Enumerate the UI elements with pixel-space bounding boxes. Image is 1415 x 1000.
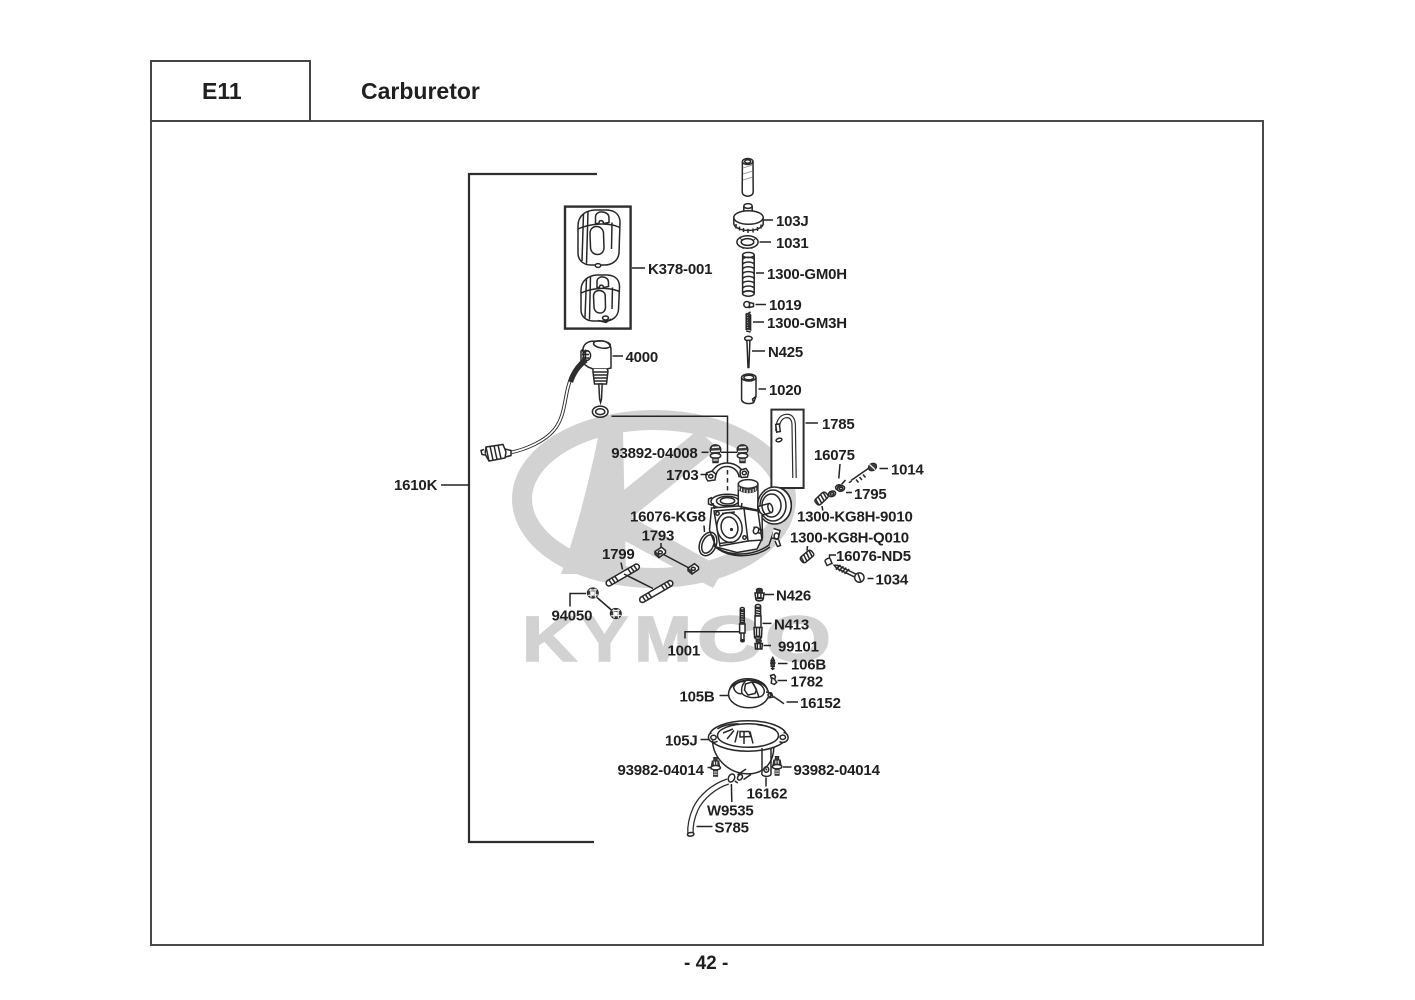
svg-text:1703: 1703 (666, 467, 699, 484)
svg-text:- 42 -: - 42 - (684, 953, 728, 974)
svg-text:1799: 1799 (602, 546, 635, 563)
svg-text:W9535: W9535 (707, 803, 754, 820)
svg-text:S785: S785 (715, 820, 749, 837)
svg-text:106B: 106B (791, 657, 826, 674)
svg-text:16162: 16162 (747, 786, 788, 803)
svg-text:1014: 1014 (891, 462, 924, 479)
svg-text:K378-001: K378-001 (648, 261, 712, 278)
svg-text:16076-KG8: 16076-KG8 (630, 509, 706, 526)
svg-text:94050: 94050 (552, 608, 593, 625)
svg-text:99101: 99101 (778, 639, 819, 656)
svg-text:1300-KG8H-9010: 1300-KG8H-9010 (797, 509, 913, 526)
svg-text:4000: 4000 (626, 349, 659, 366)
svg-text:16076-ND5: 16076-ND5 (836, 548, 911, 565)
svg-text:1610K: 1610K (394, 477, 438, 494)
svg-text:1300-KG8H-Q010: 1300-KG8H-Q010 (790, 530, 909, 547)
svg-text:E11: E11 (202, 78, 242, 104)
svg-text:1785: 1785 (822, 416, 855, 433)
svg-text:93982-04014: 93982-04014 (618, 762, 705, 779)
svg-text:1034: 1034 (876, 572, 909, 589)
svg-text:16152: 16152 (800, 695, 841, 712)
svg-text:N425: N425 (768, 344, 803, 361)
svg-text:M: M (635, 603, 692, 675)
svg-text:1300-GM0H: 1300-GM0H (767, 266, 847, 283)
svg-text:105J: 105J (665, 733, 698, 750)
svg-text:1020: 1020 (769, 382, 802, 399)
svg-text:1300-GM3H: 1300-GM3H (767, 315, 847, 332)
svg-text:1001: 1001 (668, 643, 701, 660)
svg-text:103J: 103J (776, 213, 809, 230)
svg-text:Carburetor: Carburetor (361, 78, 480, 104)
svg-text:1795: 1795 (854, 486, 887, 503)
svg-text:1031: 1031 (776, 235, 809, 252)
svg-text:1782: 1782 (791, 674, 824, 691)
svg-text:16075: 16075 (814, 447, 855, 464)
svg-text:N413: N413 (774, 617, 809, 634)
svg-text:1793: 1793 (642, 528, 675, 545)
svg-text:93982-04014: 93982-04014 (794, 762, 881, 779)
svg-text:105B: 105B (680, 689, 715, 706)
svg-text:1019: 1019 (769, 297, 802, 314)
svg-text:N426: N426 (776, 588, 811, 605)
svg-text:C: C (697, 603, 761, 675)
svg-text:93892-04008: 93892-04008 (611, 445, 697, 462)
